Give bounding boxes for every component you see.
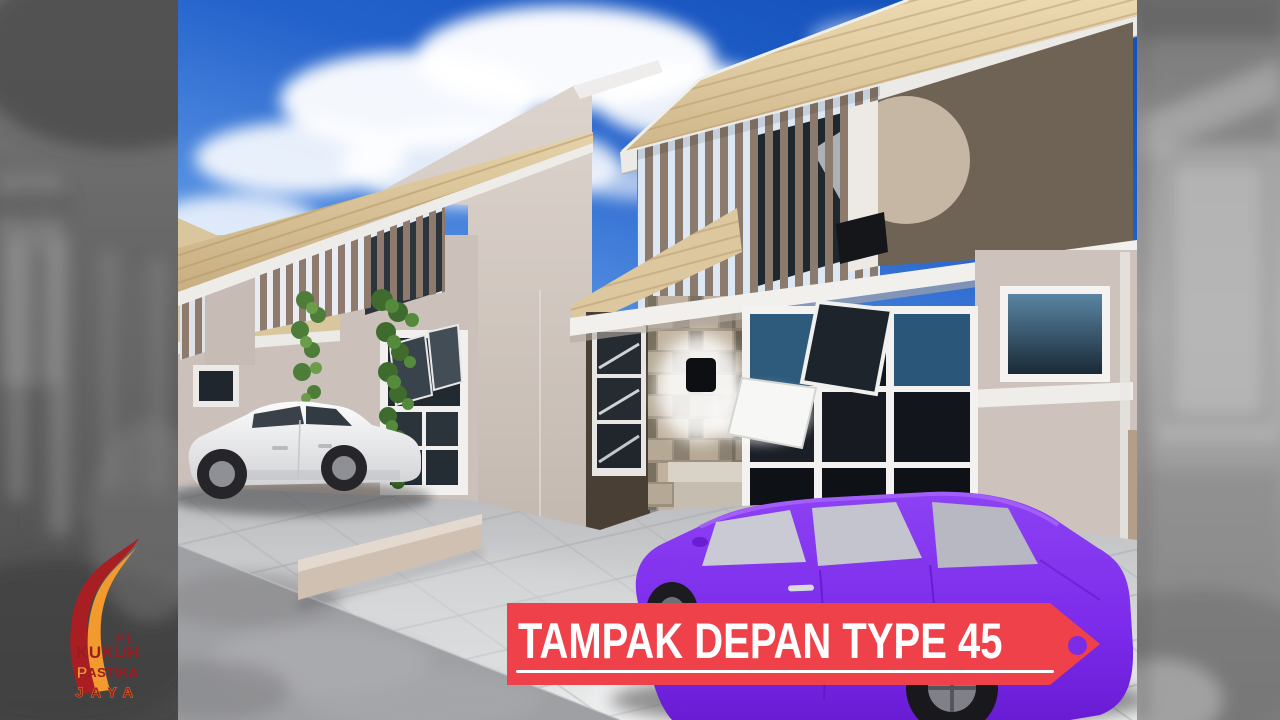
window-grid <box>710 302 978 520</box>
banner-tag: TAMPAK DEPAN TYPE 45 <box>507 603 1100 685</box>
logo-word1: KUKUH <box>76 643 140 662</box>
banner-underline <box>516 670 1054 673</box>
wall-lamp <box>686 358 716 392</box>
tag-hole <box>1068 636 1087 655</box>
banner-title: TAMPAK DEPAN TYPE 45 <box>518 616 918 672</box>
logo-word2-rest: ASTIKA <box>87 665 139 680</box>
logo-word2-initial: P <box>77 665 88 682</box>
thumbnail-frame: TAMPAK DEPAN TYPE 45 PT. KUKUH P ASTIKA … <box>0 0 1280 720</box>
logo-word3: JAYA <box>76 684 141 700</box>
company-logo: PT. KUKUH P ASTIKA JAYA <box>38 526 178 711</box>
